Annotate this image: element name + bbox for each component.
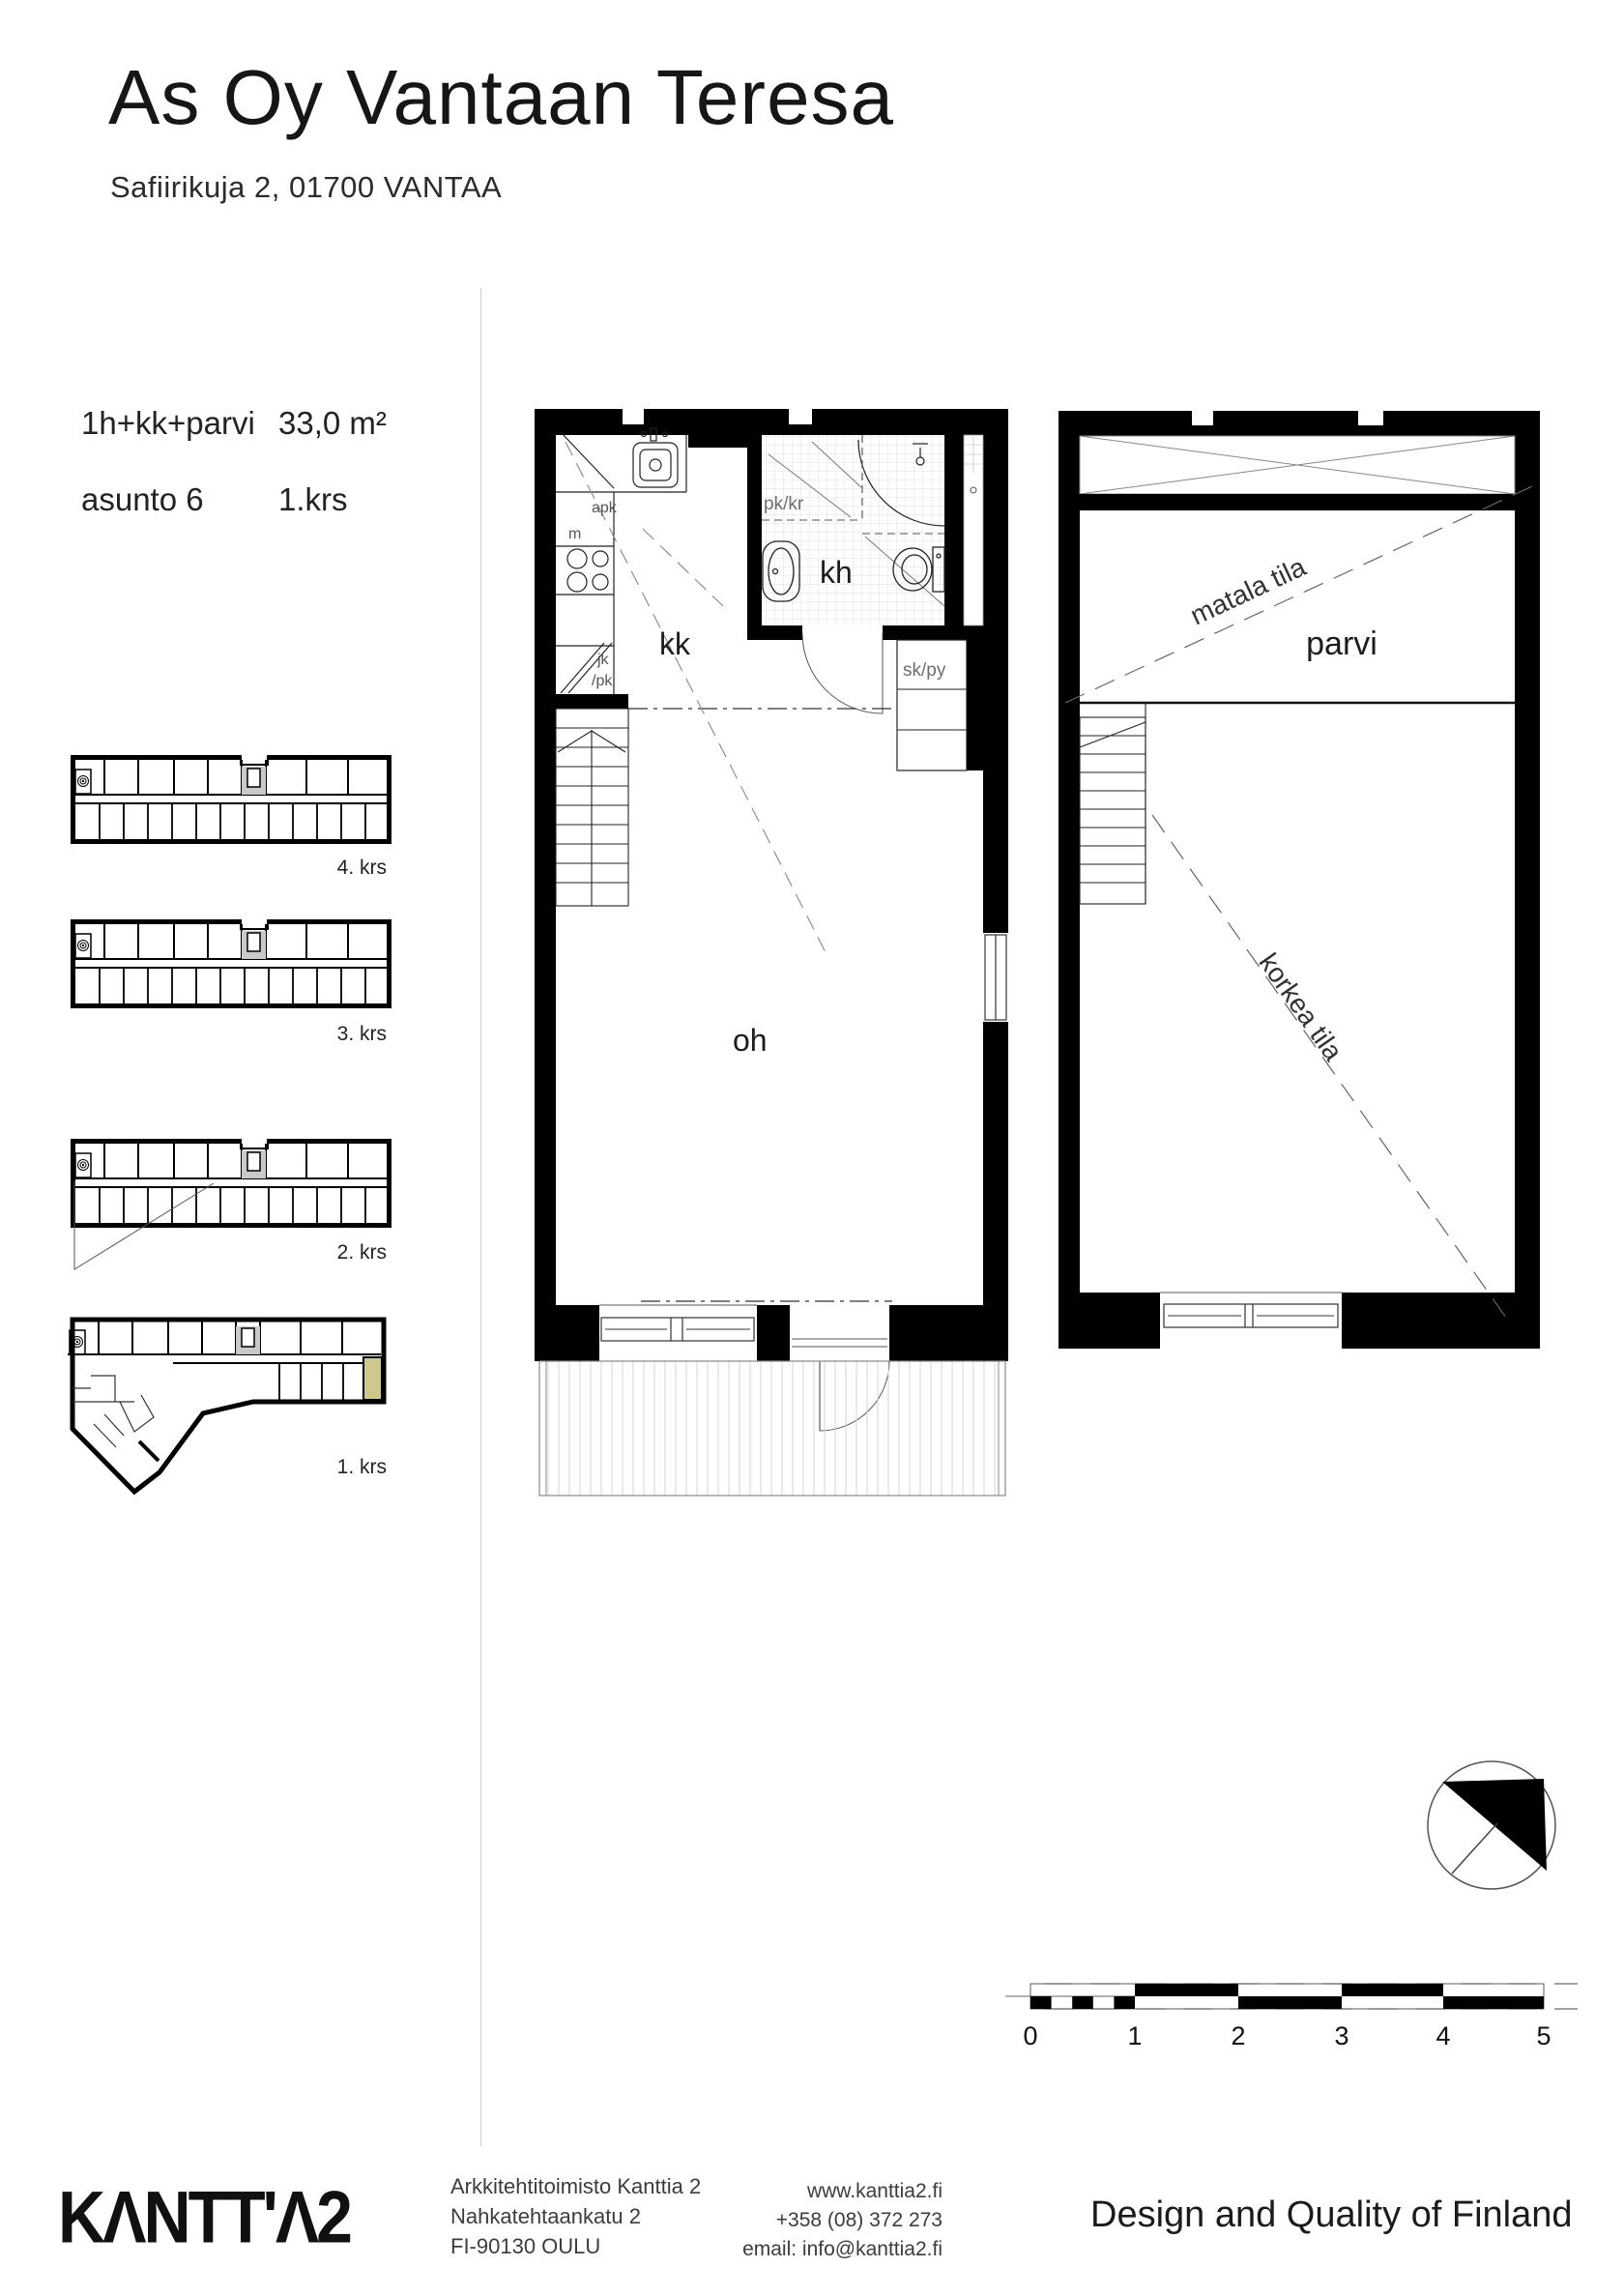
apartment-type: 1h+kk+parvi [81, 405, 255, 442]
footer-phone: +358 (08) 372 273 [776, 2209, 942, 2231]
side-window [983, 933, 1008, 1022]
room-label-parvi: parvi [1306, 625, 1377, 662]
apartment-floor: 1.krs [278, 481, 348, 518]
room-label-apk: apk [592, 500, 618, 516]
room-label-pk: /pk [592, 673, 613, 689]
apartment-unit: asunto 6 [81, 481, 204, 518]
highlighted-unit [363, 1357, 382, 1400]
kanttia2-logo: KΛNTT'Λ2 [58, 2175, 350, 2259]
terrace [539, 1361, 1005, 1496]
overview-label-2krs: 2. krs [309, 1241, 387, 1264]
footer-contact: www.kanttia2.fi+358 (08) 372 273email: i… [710, 2177, 942, 2264]
page-title: As Oy Vantaan Teresa [108, 53, 894, 142]
overview-label-1krs: 1. krs [309, 1456, 387, 1479]
void-cross [1080, 436, 1515, 494]
footer-address-line1: Arkkitehtitoimisto Kanttia 2 [450, 2174, 701, 2198]
bathroom-door [802, 633, 883, 713]
room-label-jk: jk [596, 652, 610, 668]
footer-website: www.kanttia2.fi [807, 2180, 942, 2202]
room-label-kk: kk [659, 626, 691, 661]
apartment-area: 33,0 m² [278, 405, 387, 442]
vertical-divider [480, 288, 481, 2146]
footer-tagline: Design and Quality of Finland [1090, 2194, 1573, 2236]
living-room-window [599, 1305, 757, 1361]
scale-tick-4: 4 [1435, 2021, 1450, 2050]
korkea-dashline [1152, 815, 1506, 1318]
first-floor-plan: apk m jk /pk pk/kr kk kh sk/py oh [522, 401, 1025, 1503]
zone-label-korkea-tila: korkea tila [1253, 947, 1348, 1066]
scale-tick-1: 1 [1127, 2021, 1142, 2050]
footer-address: Arkkitehtitoimisto Kanttia 2Nahkatehtaan… [450, 2171, 701, 2261]
scale-tick-3: 3 [1334, 2021, 1348, 2050]
overview-plan-4krs [71, 755, 391, 844]
kitchen-bath-wall [688, 435, 762, 448]
zone-label-matala-tila: matala tila [1186, 551, 1311, 630]
matala-dashline [1065, 486, 1532, 703]
footer-address-line3: FI-90130 OULU [450, 2234, 600, 2258]
north-arrow-icon [1419, 1748, 1564, 1893]
page-subtitle: Safiirikuja 2, 01700 VANTAA [110, 170, 502, 205]
footer-address-line2: Nahkatehtaankatu 2 [450, 2204, 641, 2228]
duct-shaft [964, 435, 983, 625]
scale-bar: 0 1 2 3 4 5 [1005, 1953, 1585, 2059]
room-label-kh: kh [820, 555, 853, 590]
room-label-pkkr: pk/kr [764, 494, 804, 514]
room-label-skpy: sk/py [903, 660, 946, 681]
staircase [556, 709, 628, 906]
overview-label-4krs: 4. krs [309, 857, 387, 880]
overview-plan-3krs [71, 919, 391, 1008]
room-label-m: m [568, 526, 581, 542]
loft-staircase [1080, 703, 1145, 904]
scale-tick-2: 2 [1231, 2021, 1245, 2050]
loft-plan: matala tila parvi korkea tila [1044, 401, 1556, 1358]
overview-label-3krs: 3. krs [309, 1023, 387, 1046]
room-label-oh: oh [733, 1023, 768, 1058]
scale-tick-5: 5 [1536, 2021, 1551, 2050]
loft-window [1160, 1293, 1342, 1349]
scale-tick-0: 0 [1023, 2021, 1037, 2050]
footer-email: email: info@kanttia2.fi [742, 2238, 942, 2260]
